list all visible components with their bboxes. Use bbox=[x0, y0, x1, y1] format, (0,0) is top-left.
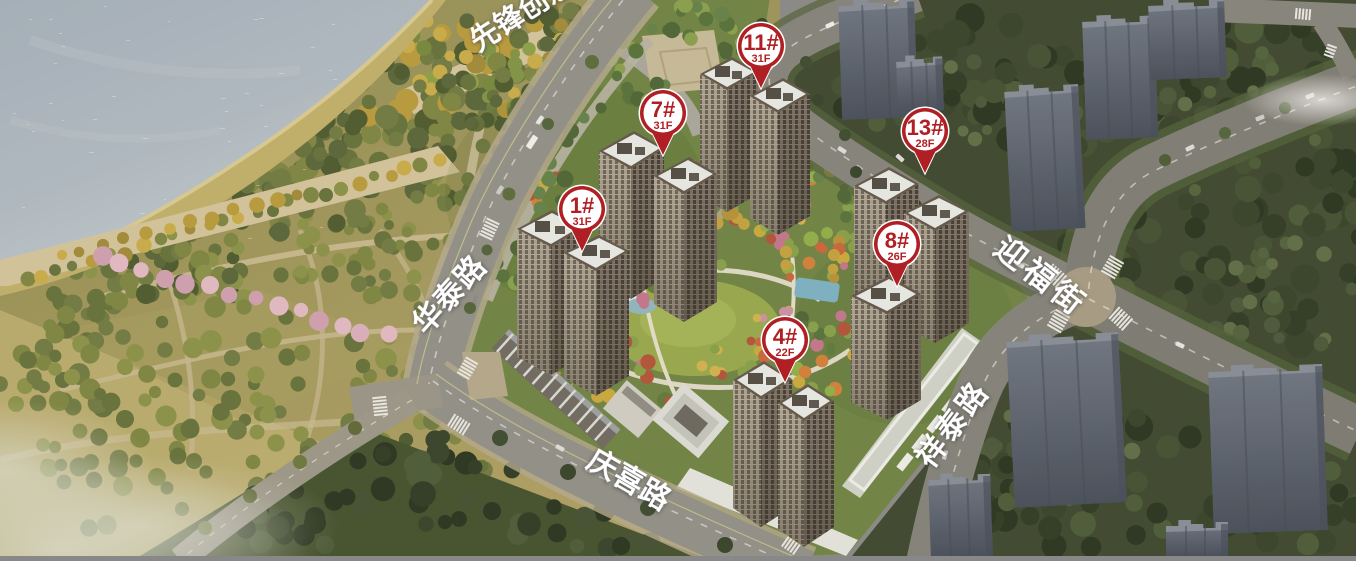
svg-text:7#: 7# bbox=[651, 97, 675, 122]
svg-text:8#: 8# bbox=[885, 228, 909, 253]
svg-text:28F: 28F bbox=[916, 138, 935, 150]
svg-text:22F: 22F bbox=[776, 347, 795, 359]
svg-text:31F: 31F bbox=[654, 120, 673, 132]
svg-text:31F: 31F bbox=[573, 216, 592, 228]
svg-text:1#: 1# bbox=[570, 193, 594, 218]
svg-text:4#: 4# bbox=[773, 324, 797, 349]
svg-text:11#: 11# bbox=[743, 30, 779, 55]
svg-text:13#: 13# bbox=[907, 115, 944, 140]
svg-text:31F: 31F bbox=[752, 53, 771, 65]
svg-text:26F: 26F bbox=[888, 251, 907, 263]
